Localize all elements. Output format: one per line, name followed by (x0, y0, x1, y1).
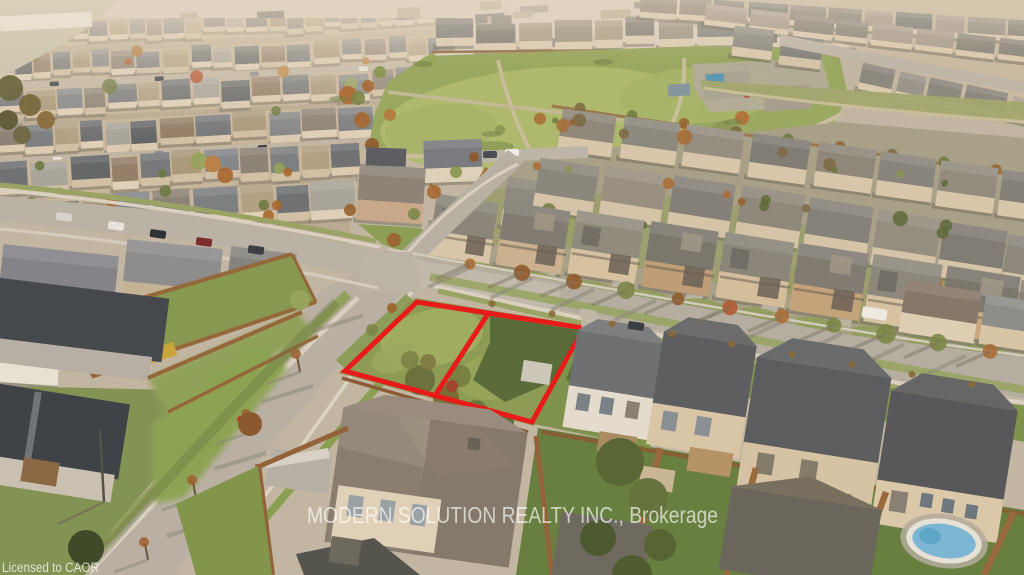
svg-text:Licensed to CAOR: Licensed to CAOR (2, 560, 99, 575)
svg-text:MODERN SOLUTION REALTY INC., B: MODERN SOLUTION REALTY INC., Brokerage (307, 502, 718, 528)
